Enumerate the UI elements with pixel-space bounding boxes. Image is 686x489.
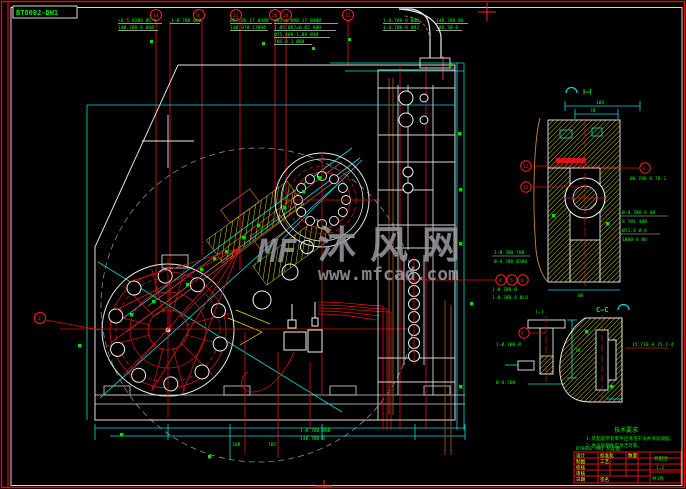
bottom-dim-texts: 1-Ø.7Ø8-Ø8Ø 14Ø.7Ø8-8 18Ø 7Ø1 (232, 427, 331, 448)
notes-title: 技术要求 (614, 426, 638, 434)
watermark: MF 沐风网 www.mfcad.com (257, 223, 474, 285)
tb-scale: 1:2 (656, 465, 665, 471)
section-label: Ⅰ—Ⅰ (583, 88, 591, 96)
center-mark-icon (142, 115, 194, 168)
tech-notes: 技术要求 1.装配前所有零件应清洗干净并涂润滑脂。 2.各运动部件应灵活可靠。 (586, 426, 674, 449)
dim-text: 1Ø8Ø-8 Ø8 (622, 236, 647, 243)
tb-cell: 设计 (576, 452, 586, 459)
tb-cell: 数量 (628, 452, 638, 459)
doc-code-box: BT8002-DW1 (13, 6, 77, 18)
cad-drawing: BT8002-DW1 14 8 21 26 28 31 (0, 0, 686, 489)
section-label: C—C (596, 306, 609, 314)
dim-text: Ø8 (578, 292, 584, 299)
dim-text: 1-Ø.7Ø8 78Ø (494, 249, 525, 256)
tb-cell: 制图 (576, 458, 586, 465)
balloon-trio: 4 5 6 (496, 275, 528, 285)
tb-cell: 签名 (600, 476, 609, 483)
tb-part-name: 装配图 (654, 455, 668, 462)
balloon-number: 7 (521, 331, 524, 337)
dim-text: 7Ø1 (268, 441, 277, 448)
dim-text: 1-Ø.7Ø8-Ø (496, 341, 521, 348)
notes-line: 1.装配前所有零件应清洗干净并涂润滑脂。 (586, 435, 674, 442)
balloon-number: 2 (38, 316, 41, 322)
watermark-logo: MF (257, 232, 297, 270)
dim-text: 14Ø.87Ø-17Ø8Ø (230, 24, 266, 31)
cad-viewport: BT8002-DW1 14 8 21 26 28 31 (0, 0, 686, 489)
balloon-number: 3 (642, 166, 645, 172)
section-body: Ø8 (548, 118, 620, 299)
dim-text: 8 7Ø1 4ØØ (622, 218, 647, 225)
tb-cell: 工艺 (600, 459, 610, 465)
doc-code: BT8002-DW1 (16, 9, 58, 17)
duct-elbow (399, 9, 450, 68)
dim-text: 7Ø5-8.1 Ø8Ø (274, 38, 305, 45)
dim-text: 7Ø (590, 107, 596, 114)
tb-sheet: 共1张 (652, 475, 664, 482)
tb-cell: 审核 (576, 470, 586, 477)
detail-view-cc: C—C 15.718-8 15-2-4 (560, 305, 674, 405)
balloon-number: 5 (510, 278, 513, 284)
watermark-url: www.mfcad.com (318, 264, 459, 285)
dim-text: Ø-8.7Ø8 (496, 379, 516, 386)
dim-text: 14Ø.7Ø8-8 (300, 435, 325, 442)
title-block: BT8002-DW1 装配图 设计 制图 校核 审核 标准化 工艺 数量 装配图… (574, 445, 681, 483)
watermark-title: 沐风网 (318, 223, 474, 267)
dim-text: 1.Ø5 Ø87±Ø.Ø2 8ØØ (274, 24, 321, 31)
detail-label: Ⅰ-Ⅰ (536, 309, 543, 316)
section-view-bb: Ⅰ—Ⅰ 1Ø4 7Ø Ø8 (521, 88, 668, 300)
dim-text: Ø-8.7Ø8-8 8Ø (622, 209, 655, 216)
dim-text: Ø87.Ø8-17 Ø4ØØ (230, 17, 269, 24)
dim-text: 15.718-8 15-2-4 (632, 342, 674, 348)
section-arrow-icon (566, 88, 577, 93)
dim-text: 18Ø (232, 441, 241, 448)
title-block-code: BT8002-DW1 装配图 (576, 445, 621, 452)
balloon-number: 12 (523, 164, 529, 170)
tb-cell: 校核 (576, 464, 586, 471)
balloon-number: 4 (499, 278, 502, 284)
title-block-texts: 设计 制图 校核 审核 标准化 工艺 数量 装配图 1:2 共1张 日期 签名 (576, 452, 668, 483)
bottom-fixtures (284, 302, 322, 352)
dim-text: 1-8.7Ø8-8 8Ø2 (383, 24, 419, 31)
tb-cell: 标准化 (600, 452, 614, 459)
tb-cell: 日期 (576, 477, 586, 483)
balloon-number: 6 (521, 278, 524, 284)
dim-text: Ø81.4 Ø8Ø-17 Ø4ØØ (274, 17, 321, 24)
dim-text: Ø-8.7Ø8 Ø2Ø8 (494, 258, 527, 265)
balloon-number: 31 (345, 13, 351, 19)
balloon-left: 2 (35, 313, 101, 331)
dim-text: 14Ø.7Ø8 Ø8 (436, 17, 464, 24)
dim-text: 1-Ø.7Ø8-Ø8Ø (300, 427, 331, 434)
dim-text: 1-Ø.7Ø8-Ø (492, 286, 517, 293)
dim-text: 14Ø.7Ø8-8 Ø8Ø (118, 24, 154, 31)
section-annotation-stack: Ø-8.7Ø8-8 8Ø 8 7Ø1 4ØØ Ø71.8 Ø-8 1Ø8Ø-8 … (620, 209, 668, 243)
dim-text: 1-Ø.7Ø8-8 ØL8 (492, 294, 528, 301)
dim-text: 1Ø4 (596, 99, 605, 106)
dim-text: Ø75.4Ø8-1.Ø8 Ø4Ø (274, 31, 318, 38)
casting-profile (534, 118, 548, 282)
dim-text: +0.5 Ø2Ø8 Ø5-8 (118, 17, 157, 24)
balloon-number: 15 (523, 185, 529, 191)
dim-text: Ø8.7Ø8-8 78-2 (630, 175, 666, 182)
dim-text: 1-Ø.7Ø8-Ø8Ø (171, 17, 202, 24)
dim-text: Ø71.8 Ø-8 (622, 227, 647, 234)
section-arrow-icon (618, 305, 629, 310)
dim-text: 1-8.7Ø8-8 Ø8Ø (383, 17, 419, 24)
